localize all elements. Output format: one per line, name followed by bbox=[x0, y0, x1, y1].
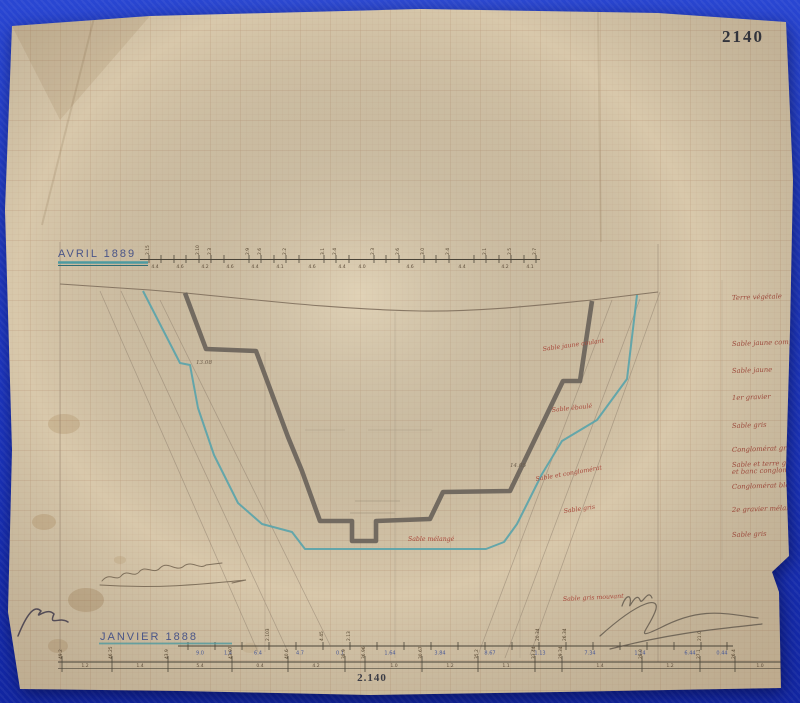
mid-scale-value: 20.34 bbox=[535, 628, 541, 641]
base-scale-value: 38.9 bbox=[341, 649, 347, 659]
base-scale-value: 40.6 bbox=[284, 649, 290, 659]
base-scale-value: 4.2 bbox=[312, 663, 319, 669]
mid-scale-value: 26.34 bbox=[562, 628, 568, 641]
top-scale-value: 4.2 bbox=[501, 264, 508, 270]
mid-scale-value: 8.67 bbox=[484, 651, 495, 657]
top-scale-value: 4.4 bbox=[151, 264, 158, 270]
top-scale-value: 4.4 bbox=[458, 264, 465, 270]
plate-number: 2140 bbox=[722, 27, 764, 46]
base-scale-value: 29.34 bbox=[558, 646, 564, 659]
top-scale-value: 4.4 bbox=[251, 264, 258, 270]
stratum-label: Sable jaune compact bbox=[732, 337, 800, 348]
base-scale-value: 43.9 bbox=[164, 649, 170, 659]
stratum-label: 1er gravier bbox=[732, 393, 772, 402]
top-scale-value: 2.9 bbox=[245, 248, 251, 255]
top-scale-value: 2.6 bbox=[395, 248, 401, 255]
top-scale-value: 3.0 bbox=[420, 248, 426, 255]
base-scale-value: 30.67 bbox=[418, 646, 424, 659]
stratum-label: Sable jaune bbox=[732, 366, 773, 375]
top-scale-value: 2.7 bbox=[532, 248, 538, 255]
measure-note: 14.05 bbox=[510, 463, 526, 469]
stratum-label: Sable gris bbox=[732, 421, 767, 430]
top-scale-value: 4.0 bbox=[358, 264, 365, 270]
stratum-label: 2e gravier mélangé bbox=[731, 504, 799, 514]
mid-scale-value: 3.84 bbox=[434, 651, 445, 657]
base-scale-value: 46.25 bbox=[108, 646, 114, 659]
mid-scale-value: 7.34 bbox=[584, 651, 595, 657]
mid-scale-value: 21.0 bbox=[697, 631, 703, 641]
paper-texture bbox=[0, 0, 800, 703]
drawing-sheet: 2.152.102.32.92.62.23.12.42.32.63.02.42.… bbox=[0, 0, 800, 703]
top-scale-value: 2.3 bbox=[207, 248, 213, 255]
base-scale-value: 1.0 bbox=[756, 663, 763, 669]
base-scale-value: 26.4 bbox=[731, 649, 737, 659]
top-scale-value: 4.6 bbox=[308, 264, 315, 270]
top-scale-value: 2.15 bbox=[145, 245, 151, 255]
mid-scale-value: 4.7 bbox=[296, 651, 304, 657]
base-scale-value: 1.4 bbox=[596, 663, 603, 669]
top-scale-value: 2.4 bbox=[332, 248, 338, 255]
base-scale-value: 1.2 bbox=[446, 663, 453, 669]
mid-scale-value: 6.4 bbox=[254, 651, 262, 657]
top-scale-value: 4.6 bbox=[176, 264, 183, 270]
base-scale-value: 49.2 bbox=[58, 649, 64, 659]
base-scale-value: 1.0 bbox=[390, 663, 397, 669]
mid-scale-value: 6.44 bbox=[684, 651, 695, 657]
stratum-label: et banc conglomérat bbox=[732, 466, 800, 476]
base-scale-value: 0.4 bbox=[256, 663, 263, 669]
mid-scale-value: 2.103 bbox=[265, 628, 271, 641]
top-scale-value: 4.4 bbox=[338, 264, 345, 270]
top-scale-value: 2.5 bbox=[507, 248, 513, 255]
top-scale-value: 2.4 bbox=[445, 248, 451, 255]
mid-scale-value: 9.0 bbox=[196, 651, 204, 657]
base-scale-value: 1.1 bbox=[502, 663, 509, 669]
base-scale-value: 43.97 bbox=[228, 646, 234, 659]
plate-number-footer: 2.140 bbox=[357, 672, 387, 684]
top-scale-value: 2.1 bbox=[482, 248, 488, 255]
mid-scale-value: 0.44 bbox=[716, 651, 727, 657]
profile-annotation: Sable mélangé bbox=[408, 536, 455, 543]
top-scale-value: 4.2 bbox=[201, 264, 208, 270]
stratum-label: Conglomérat bleuâtre bbox=[732, 480, 800, 491]
top-scale-value: 2.2 bbox=[282, 248, 288, 255]
base-scale-value: 1.2 bbox=[666, 663, 673, 669]
base-scale-value: 27.1 bbox=[696, 649, 702, 659]
mid-scale-value: 1.64 bbox=[384, 651, 395, 657]
base-scale-value: 33.44 bbox=[531, 646, 537, 659]
date-label-january: JANVIER 1888 bbox=[100, 631, 198, 643]
base-scale-value: 28.0 bbox=[638, 649, 644, 659]
measure-note: 13.08 bbox=[196, 360, 212, 366]
stratum-label: Sable gris bbox=[732, 530, 767, 539]
top-scale-value: 4.6 bbox=[226, 264, 233, 270]
top-scale-value: 4.1 bbox=[526, 264, 533, 270]
base-scale-value: 35.2 bbox=[474, 649, 480, 659]
base-scale-value: 1.4 bbox=[136, 663, 143, 669]
base-scale-value: 25.42 bbox=[786, 646, 792, 659]
top-scale-value: 3.1 bbox=[320, 248, 326, 255]
photo-backdrop: 2.152.102.32.92.62.23.12.42.32.63.02.42.… bbox=[0, 0, 800, 703]
top-scale-value: 2.6 bbox=[257, 248, 263, 255]
top-scale-value: 2.10 bbox=[195, 245, 201, 255]
top-scale-value: 4.6 bbox=[406, 264, 413, 270]
top-scale-value: 4.1 bbox=[276, 264, 283, 270]
mid-scale-value: 4.45 bbox=[319, 631, 325, 641]
base-scale-value: 1.2 bbox=[81, 663, 88, 669]
base-scale-value: 36.96 bbox=[361, 646, 367, 659]
date-label-april: AVRIL 1889 bbox=[58, 248, 136, 260]
top-scale-value: 2.3 bbox=[370, 248, 376, 255]
base-scale-value: 5.4 bbox=[196, 663, 203, 669]
mid-scale-value: 2.13 bbox=[346, 631, 352, 641]
